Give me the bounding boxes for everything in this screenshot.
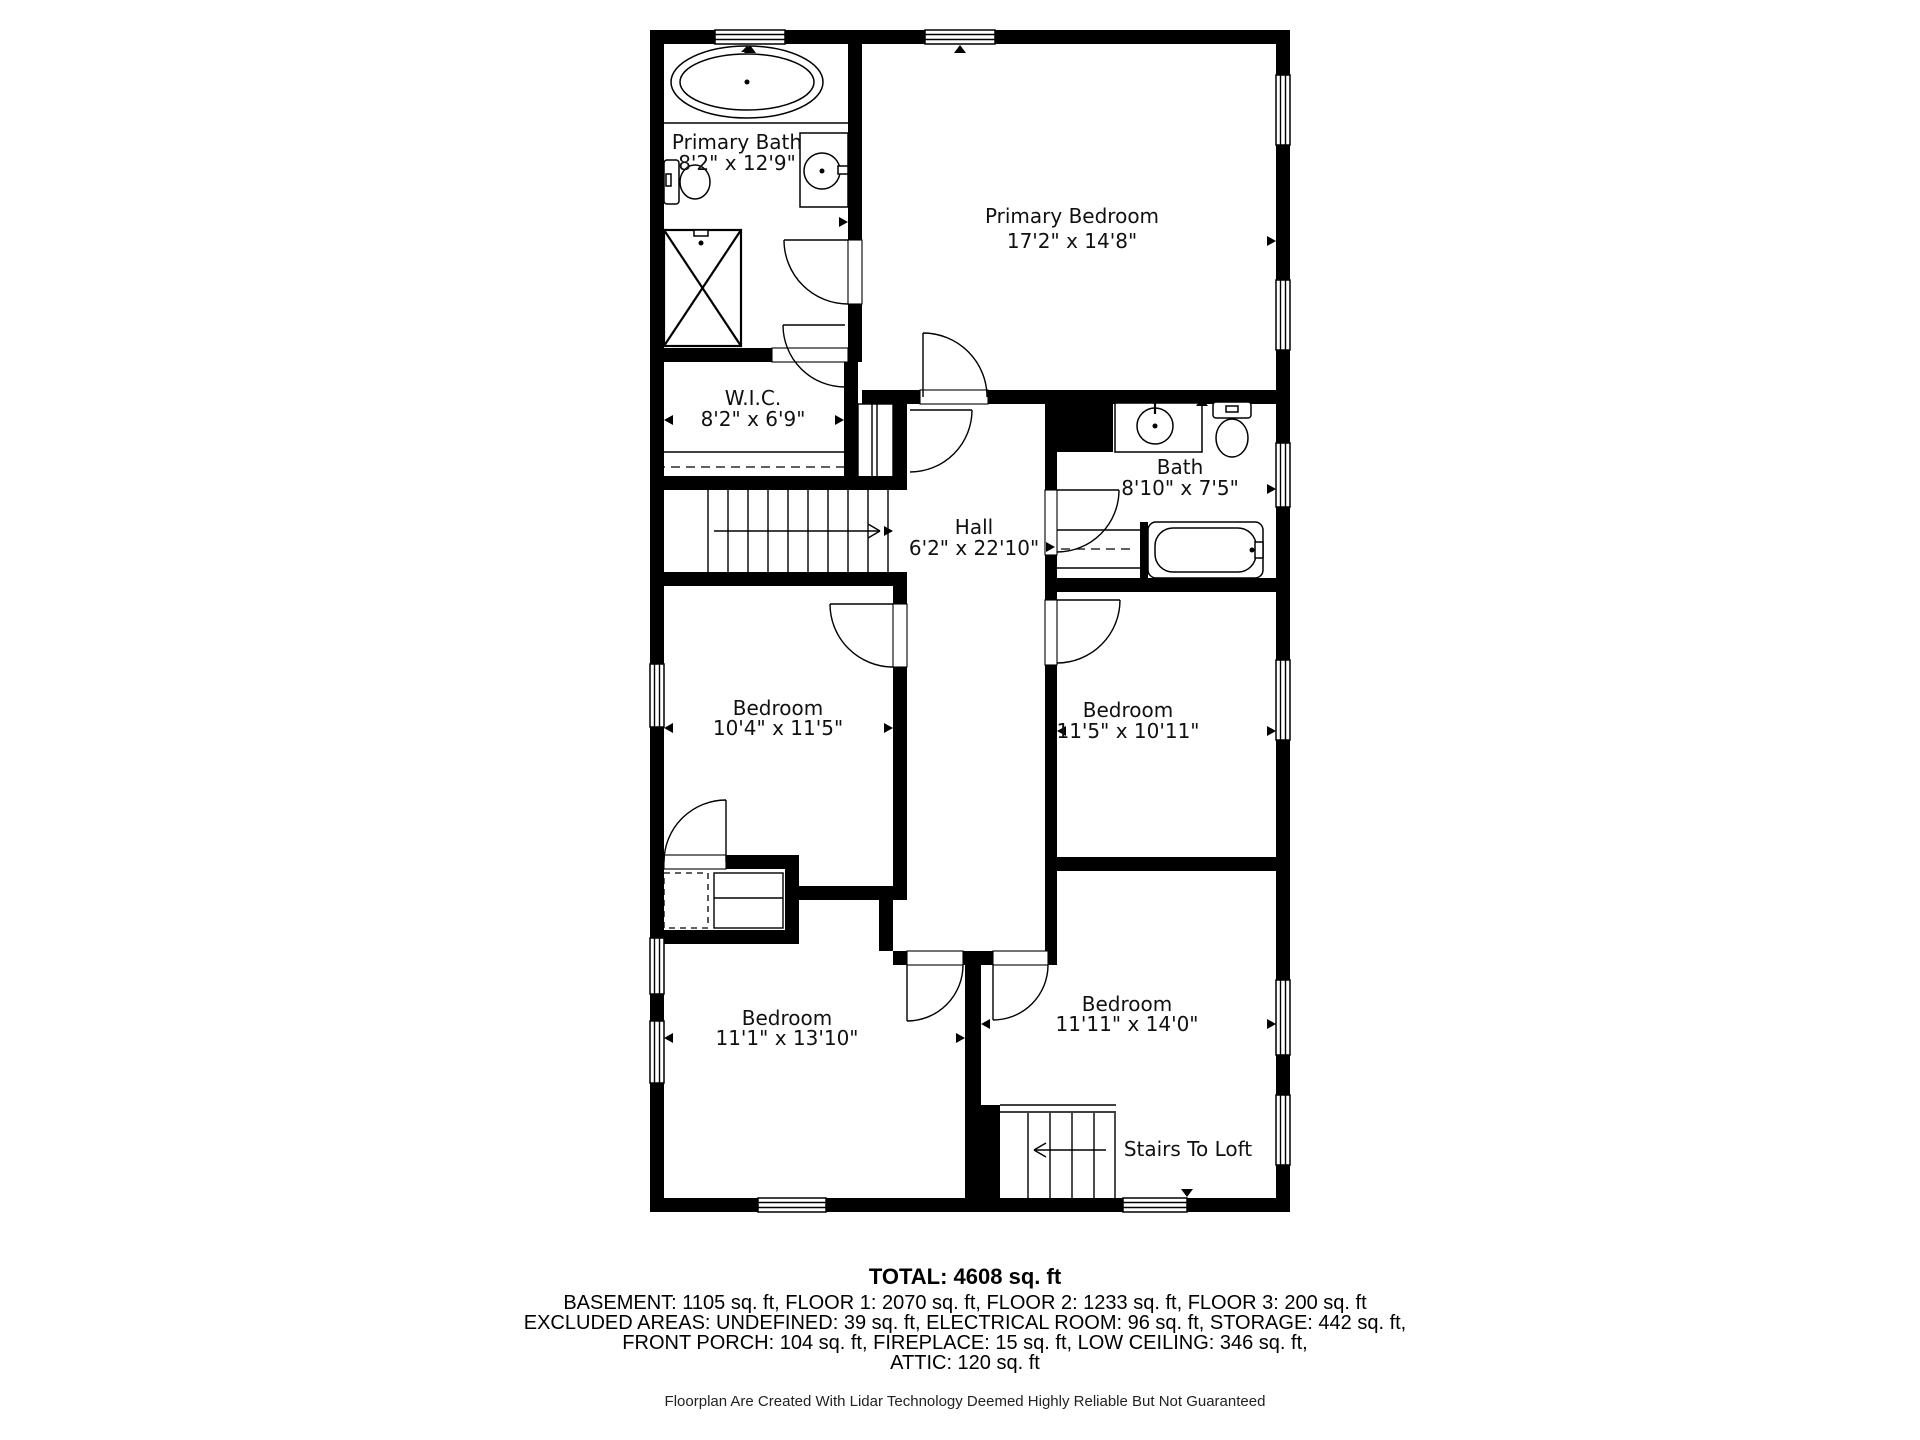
room-dims-bedroom-mid-left: 10'4" x 11'5": [713, 716, 843, 740]
sink-vanity: [800, 133, 848, 207]
bath-toilet: [1213, 402, 1251, 457]
oval-tub: [664, 46, 848, 123]
door: [830, 604, 893, 667]
stairs-to-loft-label: Stairs To Loft: [1124, 1137, 1252, 1161]
door: [910, 410, 972, 472]
door: [784, 240, 848, 304]
room-dims-hall: 6'2" x 22'10": [909, 536, 1039, 560]
door: [923, 333, 987, 397]
window: [715, 30, 785, 44]
summary-excluded-2: FRONT PORCH: 104 sq. ft, FIREPLACE: 15 s…: [622, 1332, 1307, 1354]
room-dims-bath: 8'10" x 7'5": [1121, 476, 1239, 500]
door: [664, 800, 726, 862]
bathtub: [1148, 522, 1263, 578]
window: [1276, 1095, 1290, 1165]
window: [1276, 280, 1290, 350]
bath-sink-vanity: [1115, 403, 1202, 452]
window: [1276, 660, 1290, 740]
door: [993, 965, 1048, 1020]
door: [907, 965, 963, 1021]
room-dims-wic: 8'2" x 6'9": [701, 407, 806, 431]
shower: [664, 230, 741, 346]
room-dims-bedroom-bottom-left: 11'1" x 13'10": [715, 1026, 858, 1050]
staircase-loft: [1000, 1105, 1116, 1198]
room-dims-primary-bedroom: 17'2" x 14'8": [1007, 229, 1137, 253]
room-label-primary-bedroom: Primary Bedroom: [985, 204, 1159, 228]
wic-shelves: [656, 452, 844, 467]
room-dims-bedroom-mid-right: 11'5" x 10'11": [1056, 719, 1199, 743]
window: [1123, 1198, 1187, 1212]
window: [650, 1021, 664, 1083]
summary-attic: ATTIC: 120 sq. ft: [890, 1352, 1040, 1374]
window: [1276, 980, 1290, 1055]
room-dims-bedroom-bottom-right: 11'11" x 14'0": [1055, 1012, 1198, 1036]
hall-closet: [858, 404, 893, 483]
window: [1276, 75, 1290, 145]
window: [925, 30, 995, 44]
staircase-main: [708, 490, 893, 572]
bedroom-closet: [664, 873, 783, 928]
summary-floors: BASEMENT: 1105 sq. ft, FLOOR 1: 2070 sq.…: [563, 1292, 1367, 1314]
window: [650, 664, 664, 727]
summary-excluded-1: EXCLUDED AREAS: UNDEFINED: 39 sq. ft, EL…: [524, 1312, 1407, 1334]
door: [1057, 600, 1120, 663]
disclaimer: Floorplan Are Created With Lidar Technol…: [665, 1393, 1266, 1410]
window: [758, 1198, 826, 1212]
door: [1057, 490, 1119, 552]
summary-total: TOTAL: 4608 sq. ft: [869, 1264, 1062, 1289]
window: [1276, 443, 1290, 507]
floorplan-page: Primary Bath 8'2" x 12'9" Primary Bedroo…: [0, 0, 1920, 1440]
window: [650, 938, 664, 994]
floorplan-canvas: Primary Bath 8'2" x 12'9" Primary Bedroo…: [0, 0, 1920, 1440]
room-dims-primary-bath: 8'2" x 12'9": [678, 151, 796, 175]
